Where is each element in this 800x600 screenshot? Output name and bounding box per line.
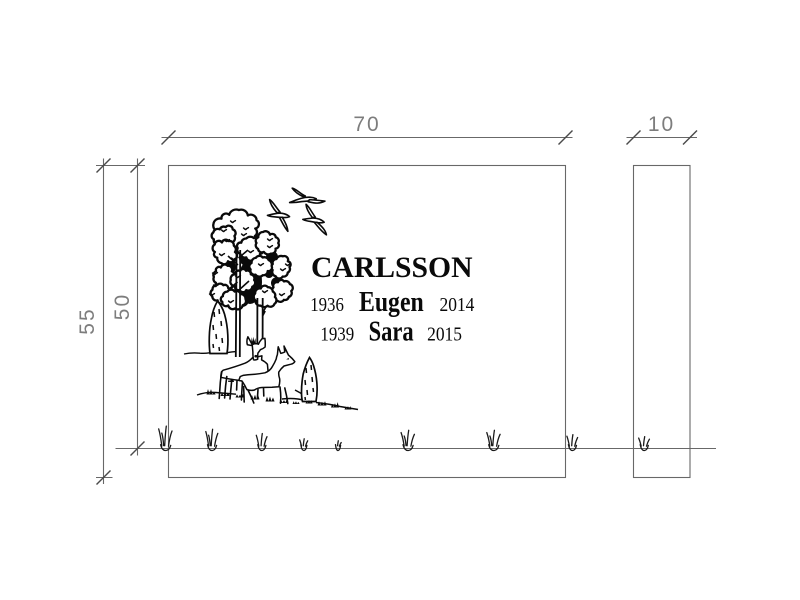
svg-text:10: 10 (648, 113, 675, 136)
svg-text:50: 50 (111, 293, 134, 320)
svg-text:2014: 2014 (440, 294, 475, 316)
svg-text:CARLSSON: CARLSSON (311, 251, 473, 284)
svg-text:2015: 2015 (427, 324, 462, 346)
svg-text:55: 55 (76, 307, 99, 334)
svg-text:Sara: Sara (369, 317, 414, 348)
svg-text:70: 70 (353, 113, 380, 136)
svg-text:Eugen: Eugen (359, 287, 424, 318)
svg-text:1936: 1936 (310, 294, 344, 316)
svg-text:1939: 1939 (320, 324, 354, 346)
